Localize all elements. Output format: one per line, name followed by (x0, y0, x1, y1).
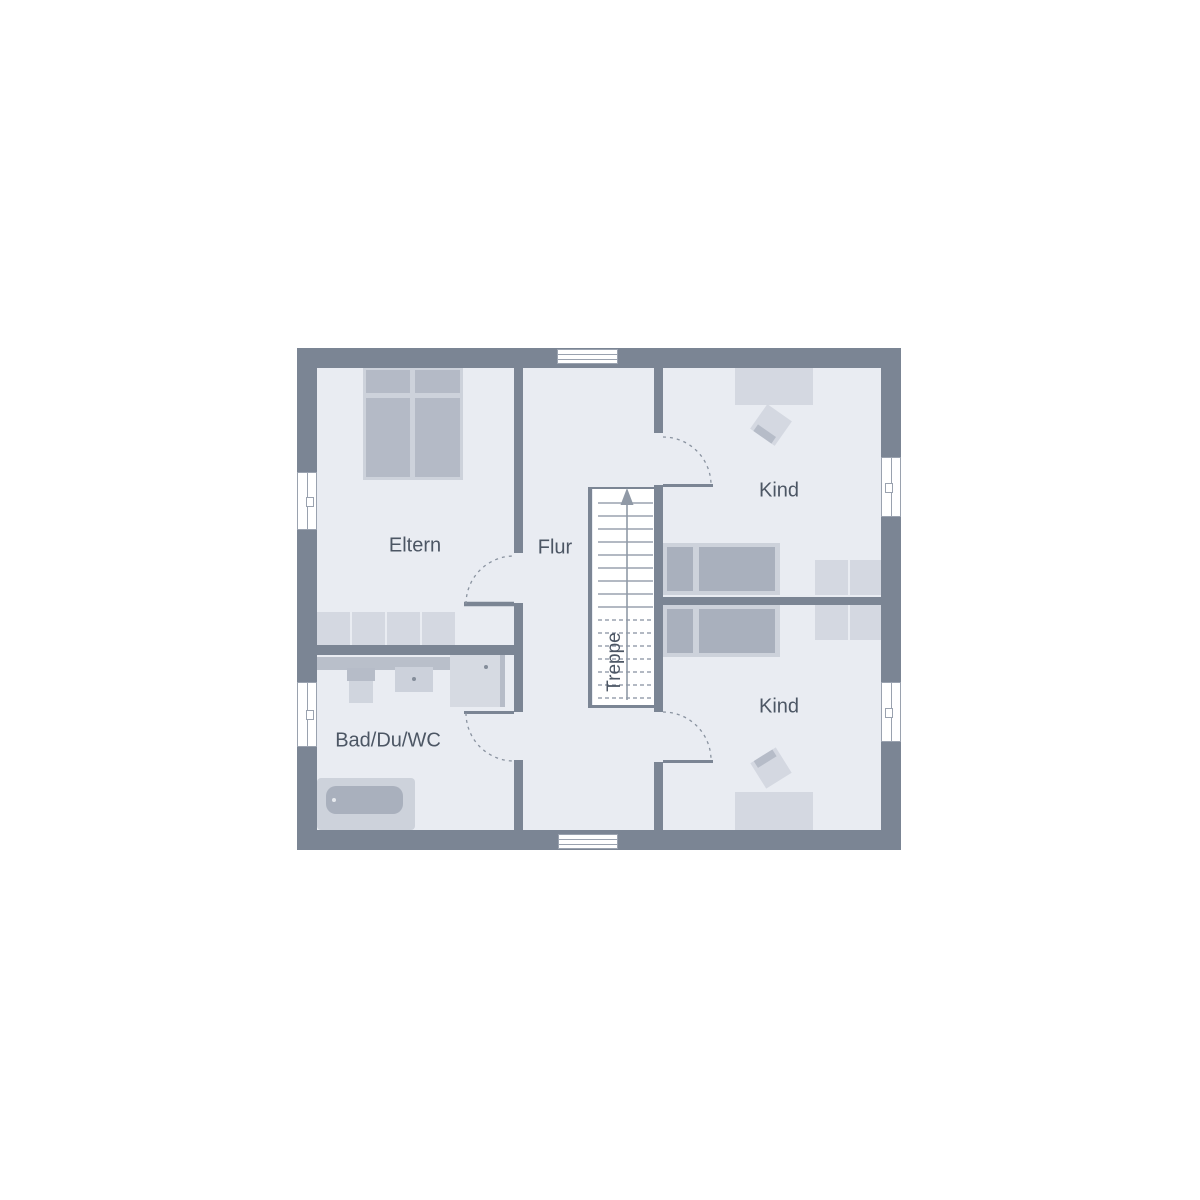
outer-wall-left (297, 348, 317, 850)
window-bad-left (297, 682, 317, 747)
wall-eltern-bad (317, 645, 523, 655)
wardrobe-parents-segment (317, 612, 350, 645)
wall-bad-flur-lower (514, 760, 523, 830)
room-label-kind-top: Kind (759, 480, 799, 503)
bed-parents-pillow-left (366, 370, 410, 393)
bed-parents-pillow-right (415, 370, 460, 393)
window-top (557, 349, 618, 364)
wardrobe-child-bottom-segment (815, 605, 848, 640)
room-label-kind-bottom: Kind (759, 696, 799, 719)
bed-parents-mattress-left (366, 398, 410, 477)
window-kind-bottom-right (881, 682, 901, 742)
floor-plan-page: Eltern Flur Kind Kind Bad/Du/WC Treppe (0, 0, 1200, 1200)
floor-plan: Eltern Flur Kind Kind Bad/Du/WC Treppe (297, 348, 901, 850)
window-bottom (558, 834, 618, 849)
window-eltern-left (297, 472, 317, 530)
wardrobe-child-bottom-segment (850, 605, 881, 640)
bathtub-drain-icon (332, 798, 336, 802)
wall-flur-kind-bottom (654, 762, 663, 830)
outer-wall-right (881, 348, 901, 850)
wardrobe-child-top-segment (815, 560, 848, 595)
room-label-bad: Bad/Du/WC (335, 730, 441, 753)
bed-child-top-mattress (699, 547, 775, 591)
bed-parents-mattress-right (415, 398, 460, 477)
room-label-treppe: Treppe (604, 632, 626, 692)
wardrobe-parents-segment (422, 612, 455, 645)
wardrobe-child-top-segment (850, 560, 881, 595)
wall-flur-kind-top (654, 368, 663, 433)
shower (450, 655, 505, 707)
stairs-top-edge (588, 487, 656, 489)
desk-child-bottom (735, 792, 813, 830)
bed-child-bottom-mattress (699, 609, 775, 653)
window-kind-top-right (881, 457, 901, 517)
room-label-eltern: Eltern (389, 535, 441, 558)
stairs-bottom-edge (588, 705, 656, 708)
shower-drain-icon (484, 665, 488, 669)
bed-child-top-pillow (667, 547, 693, 591)
toilet-bowl (349, 681, 373, 703)
wardrobe-parents-segment (352, 612, 385, 645)
bathtub-basin (326, 786, 403, 814)
wardrobe-parents-segment (387, 612, 420, 645)
desk-child-top (735, 368, 813, 405)
stairs-stringer (588, 489, 592, 705)
wall-bad-flur-upper (514, 603, 523, 712)
toilet-tank (347, 668, 375, 681)
sink-drain-icon (412, 677, 416, 681)
wall-kind-kind (654, 597, 881, 605)
bed-child-bottom-pillow (667, 609, 693, 653)
shower-glass (500, 655, 505, 707)
room-label-flur: Flur (538, 537, 572, 560)
wall-eltern-flur (514, 368, 523, 553)
